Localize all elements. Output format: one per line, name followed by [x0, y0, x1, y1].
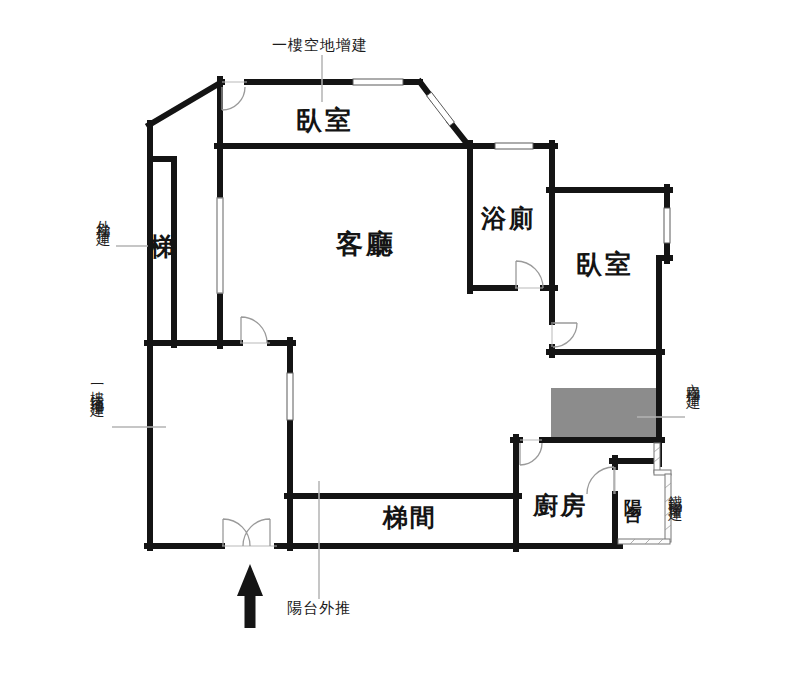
- window-bathroom-top: [495, 143, 533, 149]
- window-center-left-wall: [287, 373, 293, 420]
- room-label-kitchen: 廚房: [533, 493, 587, 519]
- room-label-bathroom: 浴廁: [481, 206, 537, 232]
- door-thresholds: [222, 82, 615, 546]
- room-label-bedroom-top: 臥室: [296, 107, 354, 134]
- door-bedroom-right: [553, 323, 577, 347]
- interior-stair-addition-area: [551, 388, 656, 438]
- window-living-left: [217, 198, 223, 293]
- annotation-ground-floor-addition-left: 一樓空地增建: [90, 377, 105, 395]
- room-label-stair: 梯: [149, 234, 174, 260]
- entrance-arrow: [237, 564, 263, 628]
- annotation-exterior-stair-addition: 外梯增建: [96, 209, 111, 225]
- annotation-interior-stair-addition: 內梯增建: [686, 372, 701, 388]
- window-bedroom-right: [664, 208, 670, 243]
- window-diagonal-wall: [427, 92, 455, 126]
- room-label-balcony: 陽台: [623, 485, 642, 495]
- door-living-room: [241, 317, 267, 343]
- annotation-balcony-extension: 陽台外推: [287, 601, 351, 617]
- wall-diagonal-left: [149, 83, 220, 125]
- door-bathroom: [516, 261, 543, 288]
- door-kitchen: [520, 443, 542, 465]
- annotation-metal-window-addition: 鐵鋁窗增建: [668, 484, 683, 499]
- door-bedroom-top: [222, 87, 245, 110]
- room-label-stairwell: 梯間: [383, 505, 437, 531]
- window-top-wall: [353, 79, 403, 85]
- floor-plan-canvas: 臥室 客廳 浴廁 臥室 梯 梯間 廚房 陽台 一樓空地增建 外梯增建 一樓空地增…: [0, 0, 800, 682]
- door-balcony: [587, 467, 614, 494]
- door-entrance-double: [223, 519, 270, 546]
- room-label-bedroom-right: 臥室: [576, 251, 634, 278]
- floor-plan-drawing: [0, 0, 800, 682]
- annotation-ground-floor-addition-top: 一樓空地增建: [272, 38, 368, 54]
- room-label-living-room: 客廳: [336, 230, 396, 258]
